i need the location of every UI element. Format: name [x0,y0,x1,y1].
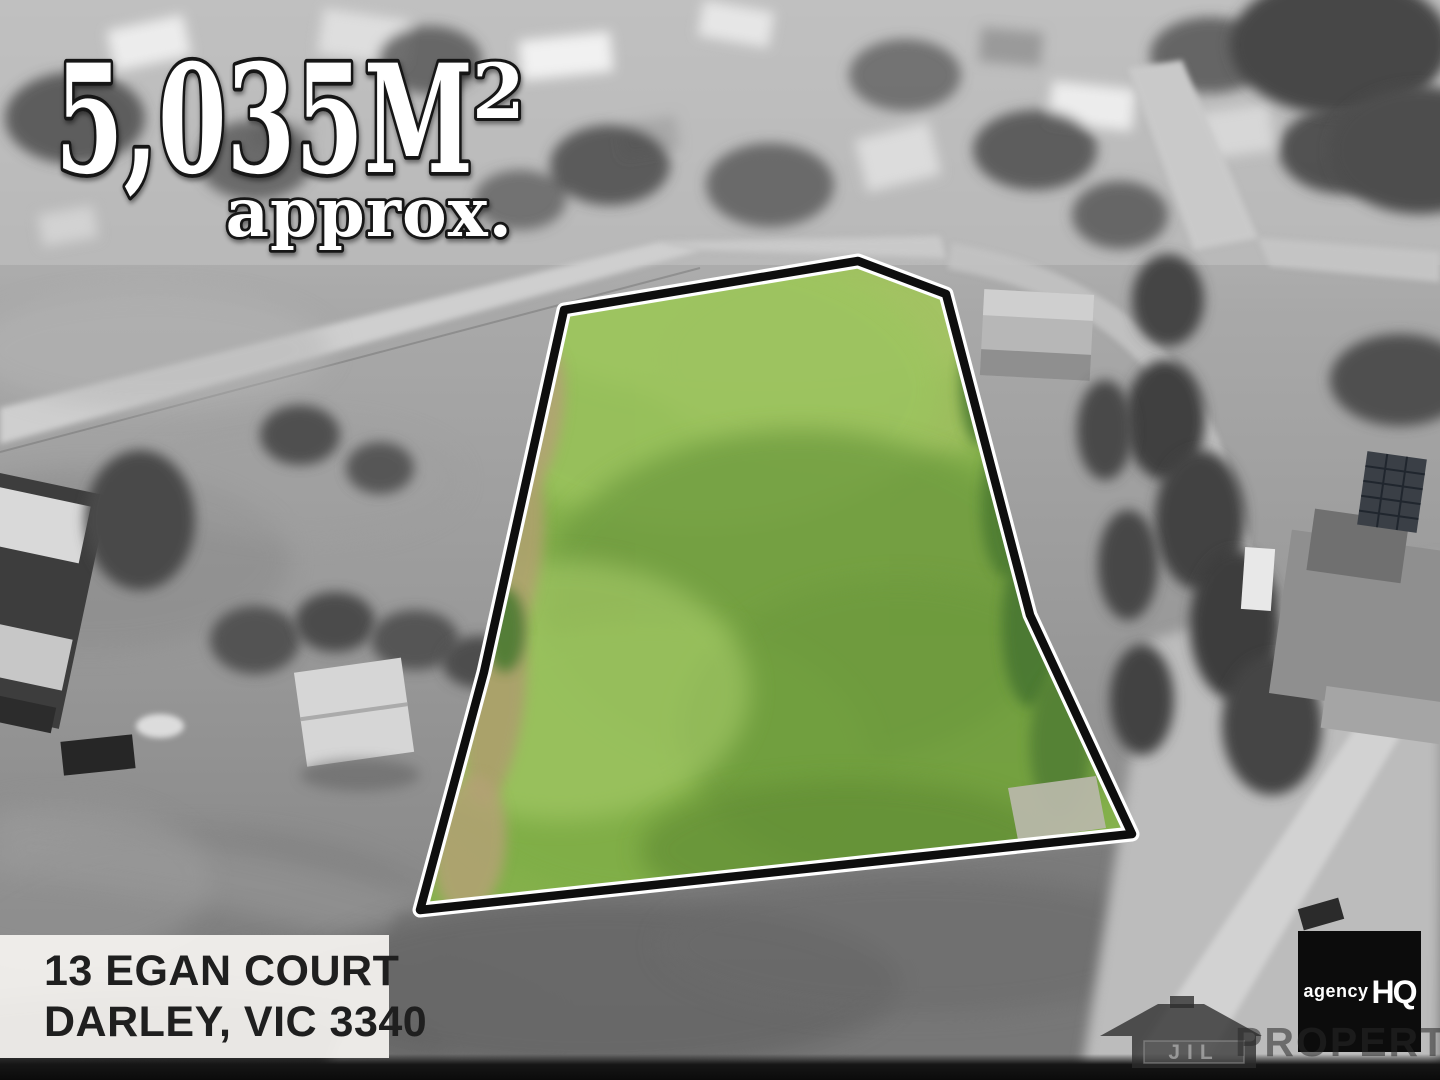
suburb-houses-and-trees [5,0,1440,249]
jil-property-watermark: JIL PROPERTY [1100,992,1440,1080]
white-truck [1241,547,1275,611]
roads [0,60,1440,700]
concrete-pad [1008,776,1106,840]
parcel-grass [370,250,1132,920]
aerial-photo-background [0,0,1440,1080]
area-headline-group: 5,035M 2 approx. [0,0,1440,1080]
area-value: 5,035M [55,32,473,208]
area-qualifier: approx. [226,173,513,252]
watermark-word: PROPERTY [1235,1019,1440,1065]
parcel-boundary-halo [420,261,1132,910]
address-card: 13 EGAN COURT DARLEY, VIC 3340 [0,935,389,1058]
photo-base [0,0,1440,1080]
listing-image: 5,035M 2 approx. 13 EGAN COURT DARLEY, V… [0,0,1440,1080]
parked-car [1298,898,1344,931]
left-neighbour-property [0,290,673,791]
foreground-field [300,838,1210,1080]
solar-panels [1357,451,1427,533]
address-line-1: 13 EGAN COURT [44,946,389,997]
address-line-2: DARLEY, VIC 3340 [44,997,389,1048]
right-neighbour-property [980,0,1440,1080]
parcel-boundary [420,261,1132,910]
watermark-initials: JIL [1168,1041,1219,1064]
area-superscript: 2 [472,47,525,136]
